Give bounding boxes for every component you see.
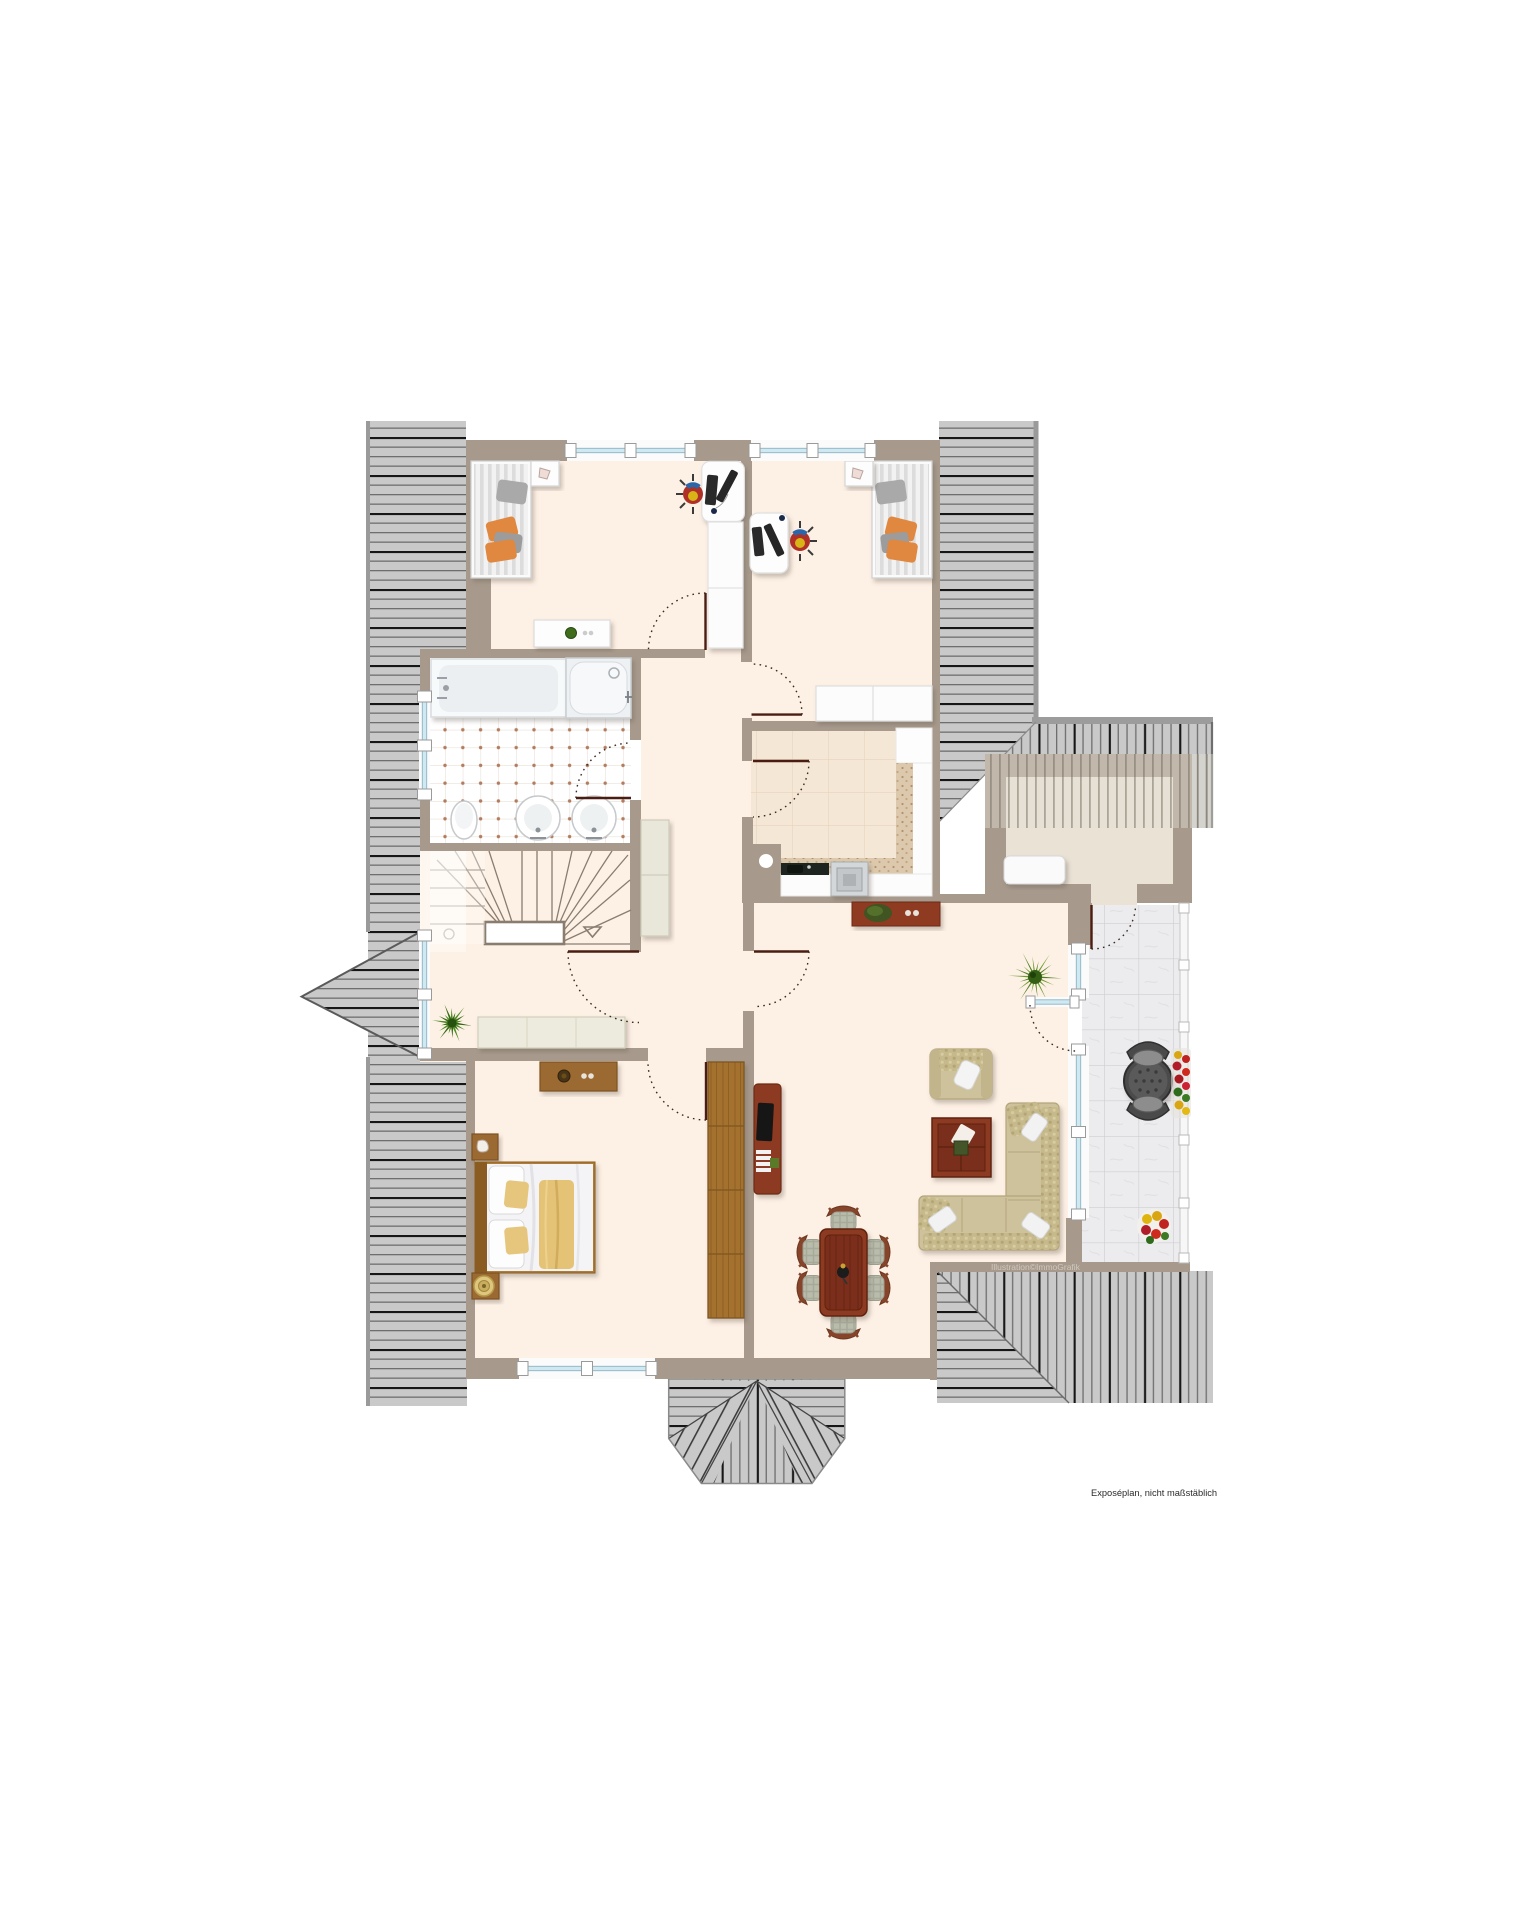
svg-text:Exposéplan, nicht maßstäblich: Exposéplan, nicht maßstäblich — [1091, 1488, 1217, 1498]
svg-text:Illustration©ImmoGrafik: Illustration©ImmoGrafik — [991, 1262, 1081, 1272]
